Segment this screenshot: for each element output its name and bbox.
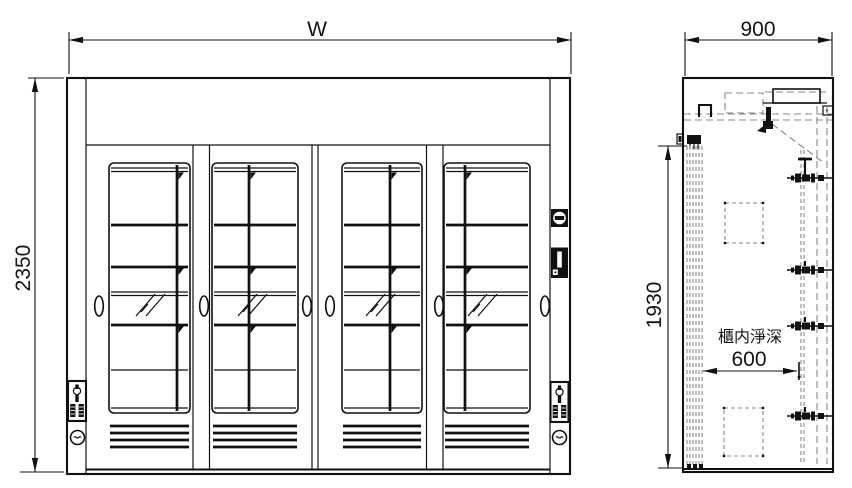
valve-nut — [811, 174, 815, 183]
shelf-clip — [392, 173, 398, 180]
service-valve-symbol — [787, 407, 833, 421]
exhaust-collar — [763, 89, 833, 115]
front-view — [67, 78, 570, 474]
recessed-door-handle — [200, 296, 209, 316]
valve-nut — [811, 322, 815, 331]
hidden-access-panel — [724, 202, 764, 244]
side-outline — [683, 78, 833, 472]
louver-vent — [110, 426, 189, 447]
shelf-clip — [467, 326, 473, 333]
side-view — [677, 78, 833, 472]
service-valve-symbol — [787, 317, 833, 331]
louver-vent — [343, 426, 421, 447]
dimension-side-depth: 900 — [685, 18, 832, 76]
door-panel-4 — [444, 163, 530, 447]
valve-body — [795, 266, 801, 275]
drawing-canvas: W 2350 900 1930 櫃内淨深 600 — [0, 0, 852, 488]
recessed-door-handle — [435, 296, 444, 316]
valve-nut — [811, 266, 815, 275]
shelf-clip — [467, 173, 473, 180]
valve-body — [795, 412, 801, 421]
service-valve-symbol — [787, 159, 833, 183]
shelf-clip — [467, 268, 473, 275]
dim-label-internal-height: 1930 — [643, 282, 666, 329]
hidden-access-panel — [723, 407, 764, 457]
dimension-internal-height: 1930 — [643, 146, 687, 468]
door-panel-3 — [342, 163, 422, 447]
lock-panel — [551, 382, 569, 422]
dimension-front-width: W — [69, 18, 571, 74]
dim-label-internal-depth: 600 — [731, 348, 766, 371]
recessed-door-handle — [541, 296, 550, 316]
dimension-front-height: 2350 — [12, 78, 64, 472]
cam-lock-knob — [71, 431, 85, 445]
door-panel-2 — [212, 163, 298, 447]
dim-label-depth: 900 — [740, 18, 775, 41]
shelf-clip — [251, 268, 257, 275]
valve-body — [795, 174, 801, 183]
bolt-stem — [75, 395, 78, 402]
dim-label-width: W — [307, 18, 327, 41]
glass-symbol — [136, 294, 165, 316]
glass-frame — [212, 163, 298, 413]
service-valves — [787, 159, 833, 421]
shelf-clip — [392, 268, 398, 275]
bolt-stem — [558, 396, 561, 403]
door-panel-1 — [109, 163, 190, 447]
glass-frame — [342, 163, 422, 413]
glass-symbol — [468, 294, 497, 316]
floor-track-marks — [687, 464, 703, 469]
control-dial — [551, 209, 568, 227]
shelf-lines — [344, 168, 420, 408]
shelf-lines — [214, 168, 296, 408]
shelf-lines — [446, 168, 528, 408]
dim-label-height: 2350 — [12, 245, 35, 292]
door-track-hidden-lines — [687, 146, 702, 467]
sliding-glass-doors — [109, 163, 530, 447]
power-switch — [551, 248, 568, 279]
shelf-clip — [251, 326, 257, 333]
door-stile-lines — [193, 145, 443, 469]
hidden-duct-diagonal — [772, 124, 824, 163]
dimension-internal-depth: 櫃内淨深 600 — [703, 327, 800, 380]
valve-nut — [811, 412, 815, 421]
service-valve-symbol — [787, 261, 833, 275]
recessed-door-handle — [326, 296, 335, 316]
drawing-page: W 2350 900 1930 櫃内淨深 600 — [0, 0, 852, 488]
lock-panel — [68, 381, 86, 421]
shelf-clip — [251, 173, 257, 180]
shelf-clip — [392, 326, 398, 333]
louver-vent — [213, 426, 297, 447]
shelf-clip — [179, 173, 185, 180]
cam-lock-knob — [553, 431, 567, 445]
dim-caption-internal-depth: 櫃内淨深 — [718, 327, 782, 346]
shelf-clip — [179, 326, 185, 333]
glass-symbol — [238, 294, 267, 316]
glass-frame — [444, 163, 530, 413]
valve-body — [795, 322, 801, 331]
shelf-clip — [179, 268, 185, 275]
recessed-door-handle — [303, 296, 312, 316]
recessed-door-handle — [95, 296, 104, 316]
louver-vent — [445, 426, 529, 447]
